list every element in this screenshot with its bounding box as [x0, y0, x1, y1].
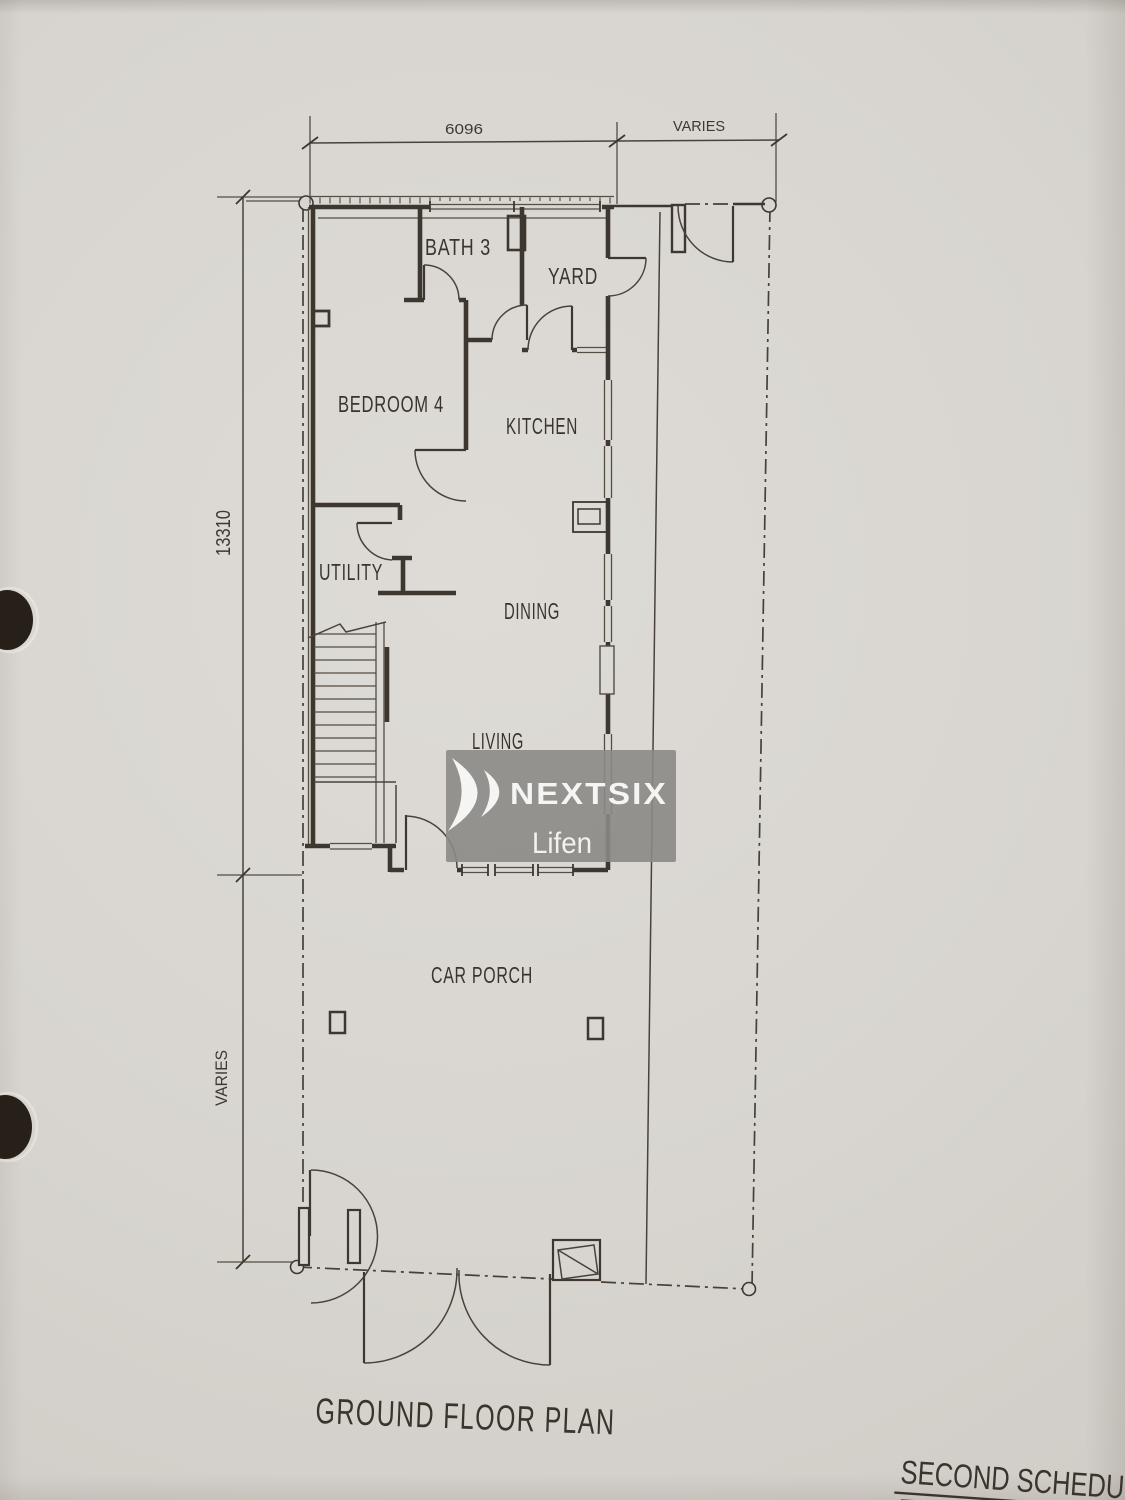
watermark-name: Lifen — [532, 827, 592, 860]
dim-left-depth: 13310 — [213, 510, 235, 556]
dimension-annotations: 6096 VARIES 13310 VARIES — [212, 113, 787, 1269]
room-label-utility: UTILITY — [319, 559, 383, 585]
hole-punch-bottom — [0, 1095, 32, 1159]
dim-top-width: 6096 — [445, 121, 483, 138]
watermark: NEXTSIX Lifen — [446, 750, 676, 862]
room-label-dining: DINING — [504, 598, 560, 624]
room-labels: BATH 3 YARD BEDROOM 4 KITCHEN UTILITY DI… — [319, 234, 598, 988]
lot-boundary — [291, 196, 777, 1296]
dim-top-varies: VARIES — [673, 118, 725, 135]
room-label-car-porch: CAR PORCH — [431, 962, 533, 988]
dim-left-varies: VARIES — [212, 1050, 231, 1106]
room-label-kitchen: KITCHEN — [506, 413, 578, 439]
floor-plan-sheet: 6096 VARIES 13310 VARIES — [0, 0, 1125, 1500]
watermark-brand: NEXTSIX — [510, 776, 668, 811]
room-label-bath3: BATH 3 — [425, 234, 491, 260]
room-label-bedroom4: BEDROOM 4 — [338, 391, 444, 417]
schedule-heading: SECOND SCHEDU — [900, 1453, 1125, 1500]
room-label-yard: YARD — [548, 263, 598, 289]
hole-punch-top — [0, 590, 33, 650]
scanned-floor-plan-page: 6096 VARIES 13310 VARIES — [0, 0, 1125, 1500]
plan-title: GROUND FLOOR PLAN — [315, 1390, 616, 1442]
walls — [299, 197, 765, 1281]
hole-punches — [0, 588, 38, 1161]
schedule-heading-block: SECOND SCHEDU — [894, 1453, 1125, 1500]
